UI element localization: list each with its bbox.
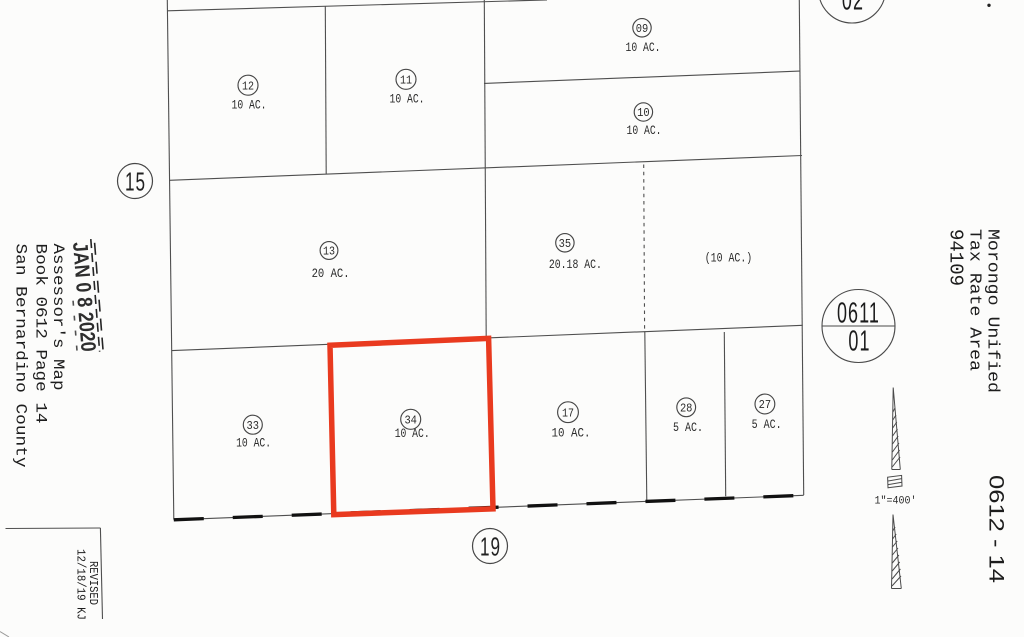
- svg-text:10 AC.: 10 AC.: [236, 437, 271, 451]
- svg-text:94109: 94109: [945, 229, 967, 286]
- svg-text:27: 27: [759, 398, 772, 412]
- svg-text:1"=400': 1"=400': [875, 496, 917, 508]
- svg-text:5 AC.: 5 AC.: [673, 421, 703, 435]
- svg-text:28: 28: [680, 402, 693, 416]
- svg-text:09: 09: [636, 22, 649, 36]
- svg-text:15: 15: [125, 167, 146, 197]
- svg-text:02: 02: [842, 0, 864, 17]
- svg-text:19: 19: [480, 532, 501, 562]
- svg-text:01: 01: [848, 325, 870, 357]
- svg-text:20 AC.: 20 AC.: [312, 267, 350, 281]
- svg-text:11: 11: [400, 74, 412, 88]
- svg-text:10 AC.: 10 AC.: [232, 99, 267, 113]
- svg-text:12: 12: [242, 79, 254, 93]
- svg-text:10: 10: [637, 106, 650, 120]
- svg-text:10 AC.: 10 AC.: [627, 124, 662, 138]
- svg-text:33: 33: [247, 419, 260, 433]
- svg-text:13: 13: [323, 245, 335, 259]
- svg-text:(10 AC.): (10 AC.): [705, 252, 753, 266]
- svg-text:10 AC.: 10 AC.: [390, 93, 425, 107]
- svg-text:5 AC.: 5 AC.: [752, 418, 782, 432]
- svg-text:10 AC.: 10 AC.: [626, 41, 661, 55]
- svg-text:REVISED: REVISED: [86, 561, 99, 605]
- svg-text:Book 0612 Page 14: Book 0612 Page 14: [32, 244, 50, 424]
- svg-text:20.18 AC.: 20.18 AC.: [549, 258, 602, 272]
- svg-text:10 AC.: 10 AC.: [395, 427, 430, 441]
- svg-text:12/18/19 KJ: 12/18/19 KJ: [74, 549, 87, 620]
- svg-text:17: 17: [562, 407, 574, 421]
- svg-text:35: 35: [559, 237, 572, 251]
- svg-text:34: 34: [404, 414, 417, 428]
- svg-text:10 AC.: 10 AC.: [552, 427, 591, 441]
- svg-text:Morongo Unified: Morongo Unified: [983, 229, 1002, 393]
- svg-text:Assessor's Map: Assessor's Map: [49, 244, 67, 391]
- svg-text:0612 - 14: 0612 - 14: [985, 475, 1008, 583]
- svg-text:San Bernardino County: San Bernardino County: [12, 244, 30, 468]
